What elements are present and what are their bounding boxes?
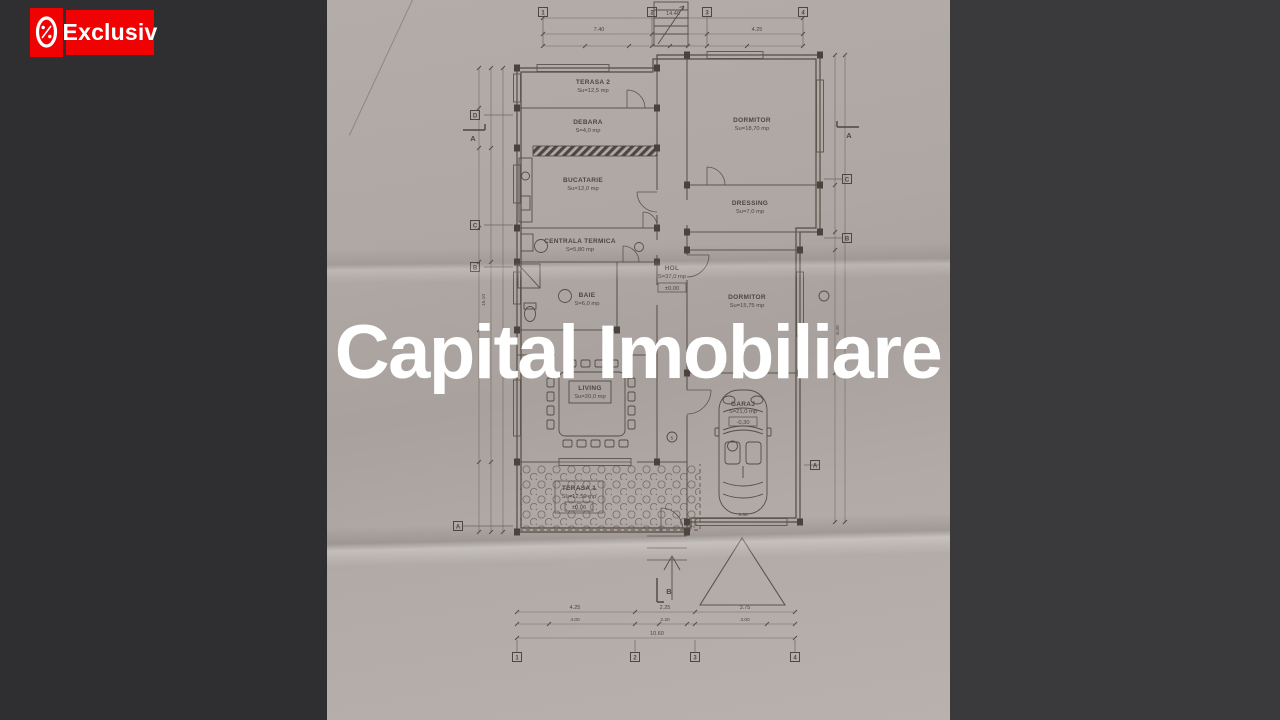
tag-label: 5 [671,436,674,442]
section-label-right: A [846,131,852,140]
room-area-dormitor2: Su=15,75 mp [730,303,765,309]
grid-label: 3 [693,656,697,662]
grid-label: C [845,178,850,184]
level-garaj: -0,30 [736,420,749,426]
room-label-baie: BAIE [579,292,596,299]
grid-label: 4 [801,11,805,17]
grid-label: 3 [705,11,709,17]
roof-triangle-icon [700,538,785,605]
room-area-garaj: S=21,0 mp [729,409,757,415]
room-area-bucatarie: Su=12,0 mp [567,186,598,192]
room-label-centrala: CENTRALA TERMICA [544,238,616,245]
grid-label: 4 [793,656,797,662]
hatched-wall-band [533,146,657,156]
section-label-left: A [470,134,476,143]
grid-label: 1 [515,656,519,662]
wall-piers [514,52,823,536]
exclusiv-badge-label: Exclusiv [63,19,158,46]
room-label-hol: HOL [665,265,680,272]
grid-label: 2 [633,656,637,662]
video-frame: 14.40 7.40 4.25 4.25 2.25 3.75 4.00 2.20… [0,0,1280,720]
level-hol: ±0,00 [665,286,679,292]
terrace-paving-pattern [520,465,700,528]
room-label-dormitor1: DORMITOR [733,117,771,124]
dim-label: 14.40 [666,11,680,17]
logo-glyph-icon [30,8,63,57]
exclusiv-badge: Exclusiv [66,10,154,55]
grid-label: B [473,266,478,272]
room-label-terasa1: TERASA 1 [562,485,596,492]
grid-label: C [473,224,478,230]
grid-label: 1 [541,11,545,17]
room-area-centrala: S=5,80 mp [566,247,594,253]
room-area-hol: S=37,0 mp [658,274,686,280]
agency-logo-icon [30,8,63,57]
level-terasa1: ±0,06 [572,505,586,511]
dim-label: 3.50 [738,512,748,518]
dim-label: 15.10 [481,294,487,306]
dim-label: 2.25 [660,605,671,611]
dim-label: 10.60 [650,631,664,637]
room-area-dressing: Su=7,0 mp [736,209,764,215]
watermark: Capital Imobiliare [322,310,954,396]
room-area-baie: S=6,0 mp [575,301,600,307]
dim-label: 3.75 [740,605,751,611]
room-label-bucatarie: BUCATARIE [563,177,603,184]
grid-label: B [845,237,850,243]
room-label-terasa2: TERASA 2 [576,79,610,86]
room-label-debara: DEBARA [573,119,603,126]
stairs-icon [654,2,688,46]
dim-label: 4.25 [752,27,763,33]
dim-label: 7.40 [594,27,605,33]
dim-label: 3.00 [740,617,750,623]
section-label-bottom: B [666,587,672,596]
room-area-terasa1: Su=12,50 mp [562,494,597,500]
room-area-debara: S=4,0 mp [576,128,601,134]
grid-label: D [473,114,478,120]
grid-label: A [456,525,461,531]
walls [517,55,820,532]
room-area-dormitor1: Su=18,70 mp [735,126,770,132]
dim-label: 2.20 [660,617,670,623]
room-area-terasa2: Su=12,5 mp [577,88,608,94]
grid-label: A [813,464,818,470]
room-label-dormitor2: DORMITOR [728,294,766,301]
room-label-garaj: GARAJ [731,401,755,408]
dim-label: 4.25 [570,605,581,611]
dim-label: 4.00 [570,617,580,623]
room-label-dressing: DRESSING [732,200,768,207]
